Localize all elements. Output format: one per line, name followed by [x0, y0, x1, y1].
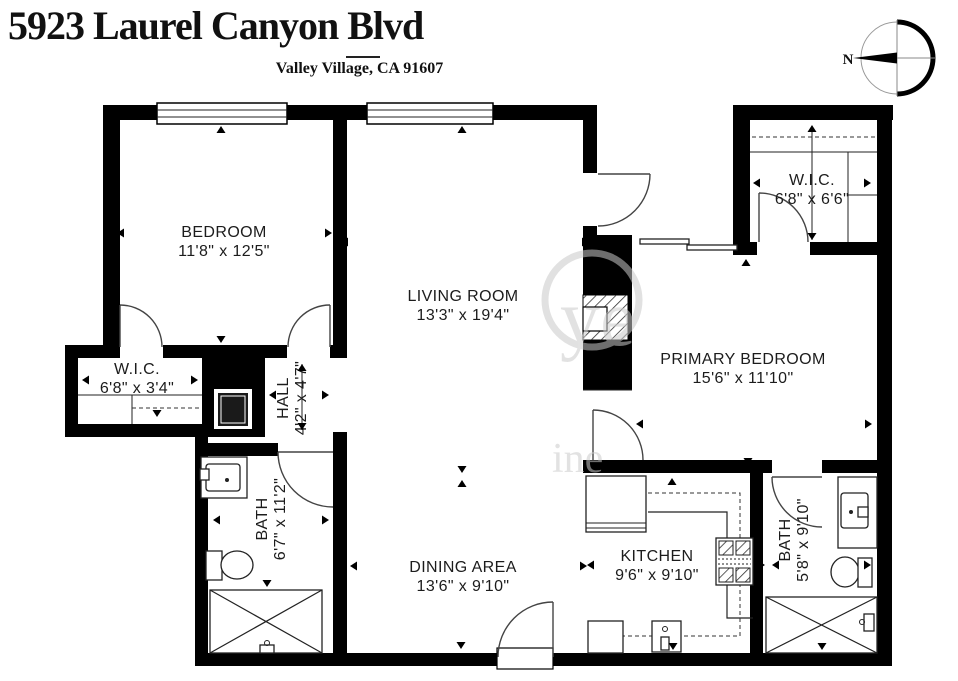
svg-text:6'7" x 11'2": 6'7" x 11'2": [272, 478, 289, 560]
dimension-arrow: [263, 580, 272, 587]
svg-text:BATH: BATH: [777, 518, 794, 561]
dimension-arrow: [587, 561, 594, 570]
svg-text:6'8" x 6'6": 6'8" x 6'6": [775, 191, 849, 208]
toilet: [831, 557, 859, 587]
room-label-living-room: LIVING ROOM 13'3" x 19'4": [407, 288, 518, 324]
svg-text:BEDROOM: BEDROOM: [181, 224, 266, 241]
dimension-arrow: [325, 229, 332, 238]
bedroom-door-right: [288, 305, 330, 347]
svg-text:PRIMARY BEDROOM: PRIMARY BEDROOM: [660, 351, 825, 368]
toilet: [206, 551, 222, 580]
svg-text:ine: ine: [552, 436, 603, 482]
dimension-arrow: [808, 125, 817, 132]
dimension-arrow: [217, 336, 226, 343]
room-label-kitchen: KITCHEN 9'6" x 9'10": [615, 548, 699, 584]
dimension-arrow: [191, 376, 198, 385]
bath-hall-fixtures: [200, 457, 322, 653]
svg-text:HALL: HALL: [275, 377, 292, 419]
room-label-bedroom: BEDROOM 11'8" x 12'5": [178, 224, 270, 260]
room-label-dining-area: DINING AREA 13'6" x 9'10": [409, 559, 517, 595]
stove: [716, 538, 753, 585]
compass-rose: N: [843, 20, 935, 96]
dimension-arrow: [213, 516, 220, 525]
dimension-arrow: [322, 516, 329, 525]
living-room-window: [367, 103, 493, 124]
floor-plan-page: 5923 Laurel Canyon Blvd Valley Village, …: [0, 0, 958, 681]
svg-text:LIVING ROOM: LIVING ROOM: [407, 288, 518, 305]
svg-text:W.I.C.: W.I.C.: [114, 361, 160, 378]
base-cabinet: [588, 621, 623, 653]
refrigerator: [586, 476, 646, 532]
dimension-arrow: [668, 478, 677, 485]
living-room-entry-door: [598, 174, 650, 226]
dimension-arrow: [808, 233, 817, 240]
dimension-arrow: [457, 642, 466, 649]
bath-primary-fixtures: [766, 477, 877, 653]
compass-needle: [853, 53, 897, 64]
svg-text:11'8" x 12'5": 11'8" x 12'5": [178, 243, 270, 260]
svg-text:5'8" x 9'10": 5'8" x 9'10": [795, 498, 812, 582]
dimension-arrow: [580, 562, 587, 571]
svg-text:9'6" x 9'10": 9'6" x 9'10": [615, 567, 699, 584]
svg-text:KITCHEN: KITCHEN: [620, 548, 693, 565]
dimension-arrow: [153, 410, 162, 417]
svg-text:BATH: BATH: [254, 497, 271, 540]
room-label-wic-hall: W.I.C. 6'8" x 3'4": [100, 361, 174, 397]
dimension-arrow: [322, 391, 329, 400]
dimension-arrow: [458, 466, 467, 473]
dimension-arrow: [458, 126, 467, 133]
room-label-bath-hall: BATH 6'7" x 11'2": [254, 478, 289, 560]
sliding-door: [640, 239, 737, 250]
water-heater: [218, 393, 248, 426]
svg-text:13'6" x 9'10": 13'6" x 9'10": [417, 578, 510, 595]
floor-plan-drawing: N: [0, 0, 958, 681]
dimension-arrow: [864, 179, 871, 188]
dimension-arrow: [636, 420, 643, 429]
bedroom-window: [157, 103, 287, 124]
svg-text:DINING AREA: DINING AREA: [409, 559, 517, 576]
dimension-arrow: [82, 376, 89, 385]
utility-niche: [214, 389, 252, 429]
room-label-bath-primary: BATH 5'8" x 9'10": [777, 498, 812, 582]
svg-text:6'8" x 3'4": 6'8" x 3'4": [100, 380, 174, 397]
dimension-arrow: [753, 179, 760, 188]
svg-text:13'3" x 19'4": 13'3" x 19'4": [417, 307, 510, 324]
svg-text:W.I.C.: W.I.C.: [789, 172, 835, 189]
dimension-arrow: [458, 480, 467, 487]
kitchen-sink: [652, 621, 681, 652]
dimension-arrow: [350, 562, 357, 571]
room-label-primary-bedroom: PRIMARY BEDROOM 15'6" x 11'10": [660, 351, 825, 387]
dimension-arrow: [217, 126, 226, 133]
dimension-arrow: [269, 391, 276, 400]
compass-north-label: N: [843, 52, 854, 68]
bedroom-door-left: [120, 305, 162, 347]
svg-text:15'6" x 11'10": 15'6" x 11'10": [692, 370, 793, 387]
dimension-arrow: [865, 420, 872, 429]
svg-text:ye: ye: [560, 275, 636, 363]
dimension-arrow: [772, 561, 779, 570]
main-entry-door: [497, 602, 553, 669]
dimension-arrow: [742, 259, 751, 266]
shower: [210, 590, 322, 653]
